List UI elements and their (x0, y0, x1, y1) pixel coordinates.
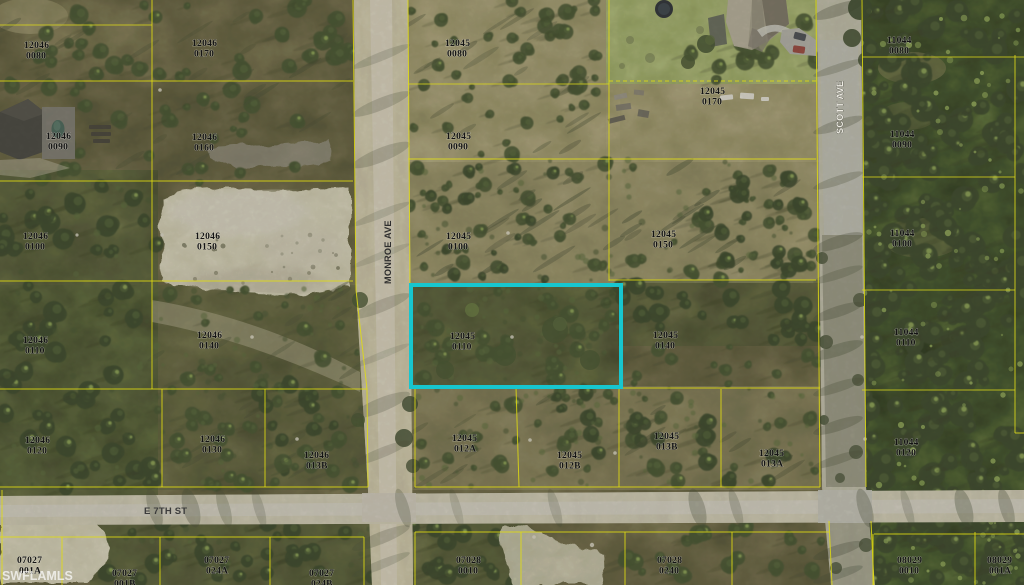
svg-text:120460080: 120460080 (24, 41, 49, 62)
svg-text:12045012A: 12045012A (452, 434, 477, 455)
svg-text:MONROE AVE: MONROE AVE (383, 220, 393, 284)
svg-text:120450170: 120450170 (700, 87, 725, 108)
svg-text:120450110: 120450110 (450, 332, 475, 353)
svg-text:120450080: 120450080 (445, 39, 470, 60)
svg-text:07027024A: 07027024A (204, 556, 229, 577)
svg-text:080290010: 080290010 (897, 556, 922, 577)
svg-text:120460130: 120460130 (200, 435, 225, 456)
svg-text:120460090: 120460090 (46, 132, 71, 153)
svg-text:110440080: 110440080 (887, 36, 912, 57)
svg-text:070280240: 070280240 (657, 556, 682, 577)
svg-text:120450090: 120450090 (446, 132, 471, 153)
svg-text:12045013A: 12045013A (759, 449, 784, 470)
svg-text:07027001B: 07027001B (112, 569, 137, 585)
svg-text:120460120: 120460120 (25, 436, 50, 457)
svg-text:120450150: 120450150 (651, 230, 676, 251)
svg-text:SWFLAMLS: SWFLAMLS (2, 569, 73, 583)
svg-text:120460150: 120460150 (195, 232, 220, 253)
svg-text:12045012B: 12045012B (557, 451, 582, 472)
svg-text:120450140: 120450140 (653, 331, 678, 352)
svg-text:120460170: 120460170 (192, 39, 217, 60)
svg-text:12046013B: 12046013B (304, 451, 329, 472)
svg-text:07027024B: 07027024B (309, 569, 334, 585)
svg-text:120460100: 120460100 (23, 232, 48, 253)
svg-text:120450100: 120450100 (446, 232, 471, 253)
svg-text:120460140: 120460140 (197, 331, 222, 352)
svg-text:070280010: 070280010 (456, 556, 481, 577)
svg-text:12045013B: 12045013B (654, 432, 679, 453)
svg-text:110440090: 110440090 (890, 130, 915, 151)
svg-text:110440100: 110440100 (890, 229, 915, 250)
svg-text:120460110: 120460110 (23, 336, 48, 357)
svg-text:E 7TH ST: E 7TH ST (144, 506, 187, 517)
svg-text:110440110: 110440110 (894, 328, 919, 349)
svg-text:110440120: 110440120 (894, 438, 919, 459)
svg-text:120460160: 120460160 (192, 133, 217, 154)
svg-text:SCOTT AVE: SCOTT AVE (835, 81, 845, 134)
svg-text:08029001A: 08029001A (987, 556, 1012, 577)
